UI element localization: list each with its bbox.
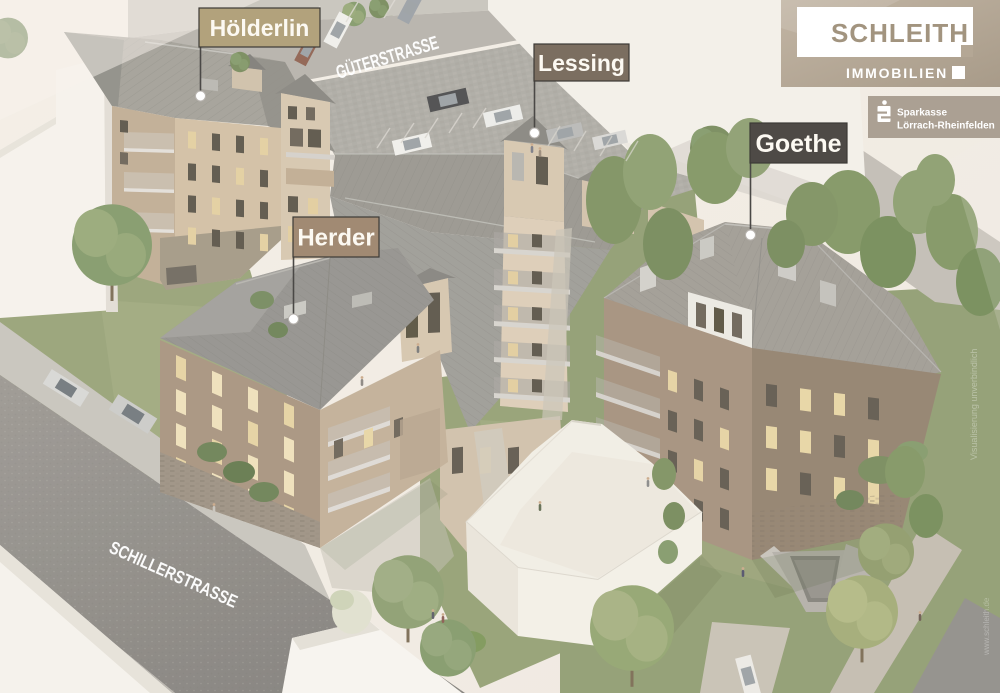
svg-text:Visualisierung unverbindlich: Visualisierung unverbindlich	[969, 349, 979, 460]
svg-text:Herder: Herder	[297, 225, 374, 252]
svg-text:Sparkasse: Sparkasse	[897, 108, 947, 119]
svg-text:Lörrach-Rheinfelden: Lörrach-Rheinfelden	[897, 121, 995, 132]
svg-text:www.schleith.de: www.schleith.de	[982, 597, 991, 656]
svg-text:IMMOBILIEN: IMMOBILIEN	[846, 65, 948, 81]
svg-text:Hölderlin: Hölderlin	[210, 15, 310, 41]
svg-text:Lessing: Lessing	[538, 50, 625, 76]
svg-text:SCHLEITH: SCHLEITH	[831, 18, 969, 48]
svg-text:Goethe: Goethe	[755, 130, 841, 158]
